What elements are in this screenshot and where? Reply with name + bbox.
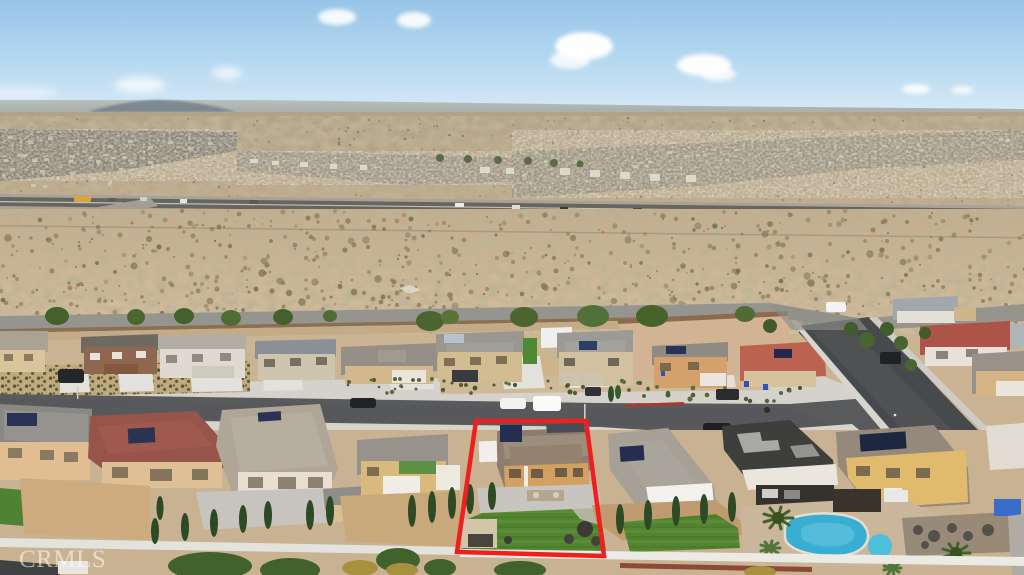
svg-text:CRMLS: CRMLS	[19, 546, 106, 573]
